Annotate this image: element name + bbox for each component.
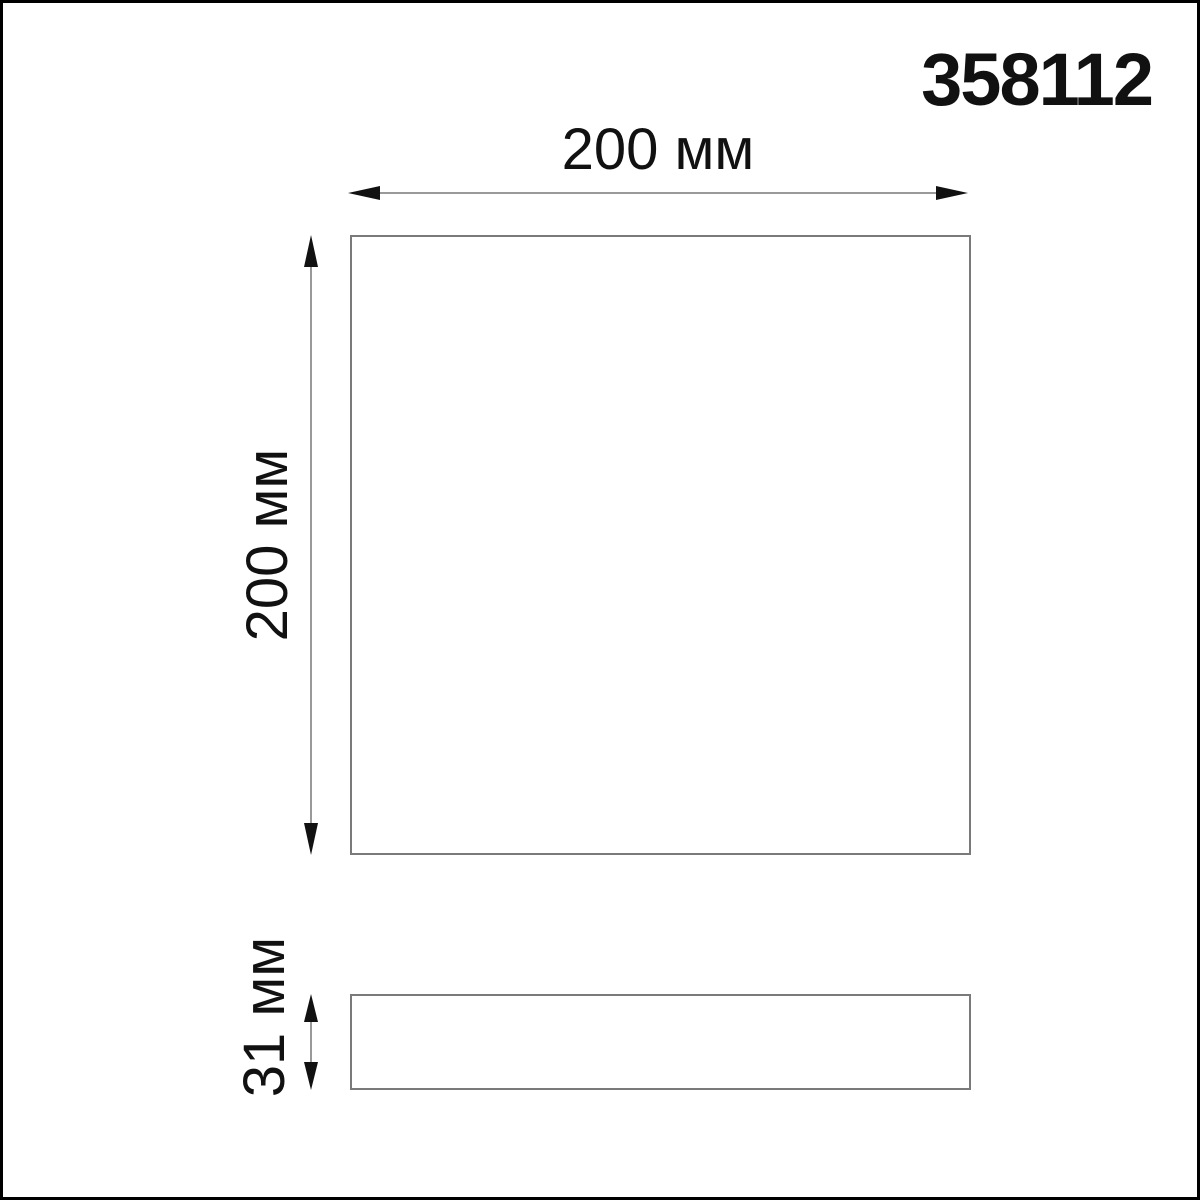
depth-dimension-arrow bbox=[299, 994, 323, 1090]
arrowhead-right-icon bbox=[936, 186, 968, 200]
part-number: 358112 bbox=[921, 43, 1152, 117]
arrowhead-up-icon bbox=[304, 235, 318, 267]
width-dimension-label: 200 мм bbox=[348, 121, 968, 179]
side-view-outline bbox=[350, 994, 971, 1090]
arrowhead-down-icon bbox=[304, 823, 318, 855]
product-dimension-diagram: 358112 200 мм 200 мм 31 мм bbox=[0, 0, 1200, 1200]
height-dimension-arrow bbox=[299, 235, 323, 855]
arrowhead-down-icon bbox=[304, 1062, 318, 1090]
width-dimension-arrow bbox=[348, 181, 968, 205]
front-view-outline bbox=[350, 235, 971, 855]
height-dimension-label: 200 мм bbox=[239, 235, 297, 855]
depth-dimension-label: 31 мм bbox=[236, 917, 294, 1117]
arrowhead-left-icon bbox=[348, 186, 380, 200]
arrowhead-up-icon bbox=[304, 994, 318, 1022]
